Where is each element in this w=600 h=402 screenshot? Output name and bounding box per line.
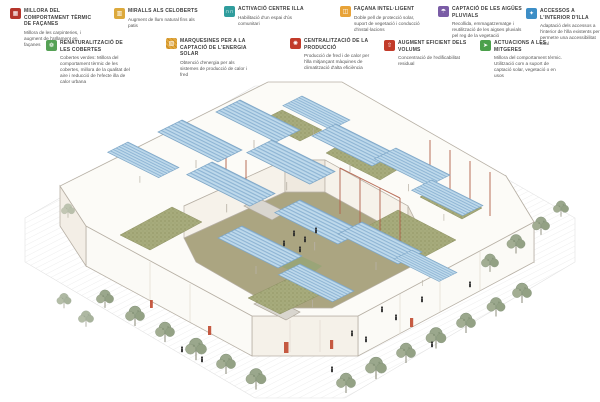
block-illustration (0, 0, 600, 402)
infographic-canvas: { "legend": { "items": [ {"title":"MILLO… (0, 0, 600, 402)
